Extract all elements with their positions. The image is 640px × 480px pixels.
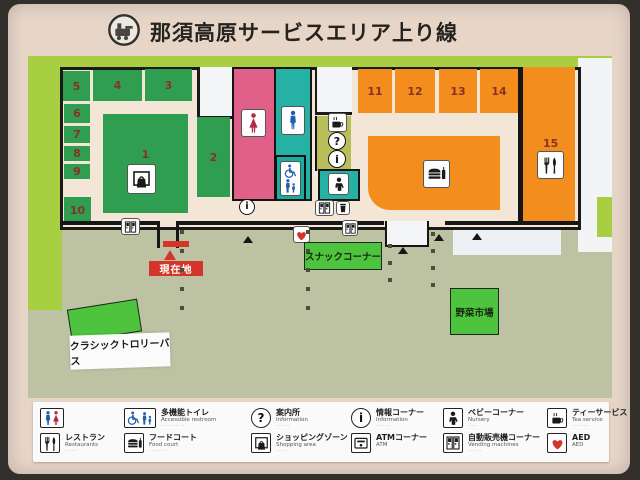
shop-unit-3: 3 [145,69,192,101]
pillar [431,266,435,270]
current-location-label: 現在地 [149,261,203,276]
food-court-icon [423,160,450,188]
current-location-arrow [164,250,176,260]
entrance-arrow [434,234,444,241]
legend-sublabel: ATM [376,442,427,448]
shop-unit-2: 2 [197,117,230,197]
pillar [180,268,184,272]
unit-number: 11 [367,85,382,98]
legend-label: ATMコーナー [376,433,427,442]
food-court-icon [124,433,144,453]
shop-unit-5: 5 [63,71,90,101]
pillar [431,232,435,236]
trolley-bus-label: クラシックトロリーバス [69,332,170,369]
snack-corner-label: スナックコーナー [304,242,382,270]
pillar [306,268,310,272]
vending-machine-icon [121,218,140,235]
unit-number: 5 [73,80,81,93]
pillar [388,261,392,265]
pillar [306,306,310,310]
legend-note: ······ [468,449,540,454]
shop-unit-7: 7 [64,126,90,143]
accessible-restroom-icon [124,408,156,428]
legend-note: ····· [276,449,348,454]
legend-note: ······· [149,449,197,454]
legend-item-information-corner: i 情報コーナーInformation······ [351,408,424,432]
legend-label: 情報コーナー [376,408,424,417]
legend-label: AED [572,433,590,442]
legend-item-accessible-restroom: 多機能トイレAccessible restroom·········· [124,408,216,432]
info-glyph: i [335,154,339,165]
baby-corner-icon [328,173,349,195]
entrance-arrow [398,247,408,254]
question-glyph: ? [334,136,340,147]
vending-machine-icon [342,220,358,236]
vending-machine-icon [443,433,463,453]
atm-icon [351,433,371,453]
baby-corner-icon [443,408,463,428]
info-glyph: i [245,202,248,212]
unit-number: 4 [114,79,122,92]
shop-unit-11: 11 [358,69,392,113]
information-corner-icon: i [351,408,371,428]
vending-machine-icon [315,200,334,216]
legend-label: レストラン [65,433,105,442]
legend-label: フードコート [149,433,197,442]
grass-patch-right [597,197,612,237]
staff-room [197,67,233,119]
shop-unit-6: 6 [64,104,90,123]
restroom-icon [40,408,64,428]
legend-note: ······· [572,424,627,429]
aed-icon [547,433,567,453]
grass-area-left [28,226,62,310]
restaurant-icon [537,151,564,179]
legend-note: ·········· [161,424,216,429]
entrance-arrow [243,236,253,243]
accessible-restroom [275,155,306,201]
pillar [306,230,310,234]
legend-note: ······ [376,424,424,429]
shopping-zone-icon [251,433,271,453]
unit-number: 8 [73,147,81,160]
legend-label: 多機能トイレ [161,408,216,417]
pillar [431,249,435,253]
legend-item-shopping-zone: ショッピングゾーンShopping area····· [251,433,348,457]
legend-item-restroom [40,408,64,432]
legend-item-aed: AEDAED [547,433,590,457]
canopy-area [453,229,561,255]
photo-of-sign: 那須高原サービスエリア上り線 5 4 3 6 7 8 9 10 1 2 ? i [0,0,640,480]
pillar [388,278,392,282]
legend-item-vending-machines: 自動販売機コーナーVending machines······ [443,433,540,457]
womens-restroom [232,67,276,201]
legend-note: ···· [468,424,524,429]
shop-unit-15-restaurant: 15 [523,67,575,223]
information-desk-icon: ? [251,408,271,428]
tea-service-icon [547,408,567,428]
legend-item-baby-corner: ベビーコーナーNursery···· [443,408,524,432]
trash-icon [336,201,350,215]
pillar [306,249,310,253]
baby-corner-room [318,169,360,201]
info-glyph: i [359,411,363,425]
legend-note: ······ [276,424,308,429]
tea-service-icon [328,113,347,132]
aed-icon [293,226,310,243]
shop-unit-13: 13 [439,69,477,113]
legend-panel: レストランRestaurants····· 多機能トイレAccessible r… [33,402,609,462]
pillar [388,244,392,248]
legend-item-restaurant: レストランRestaurants····· [40,433,105,457]
shop-unit-12: 12 [395,69,435,113]
legend-item-information-desk: ? 案内所Information······ [251,408,308,432]
shop-unit-1-shopping-zone: 1 [103,114,188,213]
question-glyph: ? [258,411,265,425]
legend-item-food-court: フードコートFood court······· [124,433,197,457]
legend-label: 自動販売機コーナー [468,433,540,442]
wheelchair-family-icon [280,161,301,196]
unit-number: 3 [165,79,173,92]
back-room [315,67,352,115]
unit-number: 9 [73,165,81,178]
woman-icon [241,109,266,137]
shop-unit-14: 14 [480,69,518,113]
food-court-area [368,136,500,210]
unit-number: 2 [210,151,218,164]
shop-unit-10: 10 [64,197,91,223]
pillar [306,287,310,291]
entrance-vestibule-wall [157,221,160,248]
unit-number: 12 [407,85,422,98]
legend-item-tea-service: ティーサービスTea service······· [547,408,627,432]
unit-number: 7 [73,128,81,141]
restaurant-icon [40,433,60,453]
information-desk-icon: ? [328,132,346,150]
information-corner-icon: i [239,199,255,215]
pillar [180,306,184,310]
legend-note: ····· [65,449,105,454]
pillar [180,249,184,253]
pillar [180,287,184,291]
unit-number: 1 [142,148,150,161]
train-emblem-logo [108,14,140,46]
shop-unit-9: 9 [64,164,90,179]
unit-number: 6 [73,107,81,120]
unit-number: 13 [450,85,465,98]
legend-item-atm-corner: ATMコーナーATM [351,433,427,457]
shop-unit-4: 4 [93,70,142,101]
legend-sublabel: AED [572,442,590,448]
man-icon [281,106,305,135]
entrance-arrow [472,233,482,240]
unit-number: 14 [491,85,506,98]
unit-number: 15 [543,137,558,150]
legend-label: ティーサービス [572,408,627,417]
pillar [431,283,435,287]
unit-number: 10 [70,204,85,217]
wall-segment [60,221,157,225]
legend-label: ベビーコーナー [468,408,524,417]
title-bar: 那須高原サービスエリア上り線 [28,12,612,52]
legend-label: ショッピングゾーン [276,433,348,442]
shopping-zone-icon [127,164,156,194]
vegetable-market-label: 野菜市場 [450,288,499,335]
pillar [180,230,184,234]
current-location-marker [163,241,189,247]
wall-segment [445,221,578,225]
page-title: 那須高原サービスエリア上り線 [150,17,458,47]
information-corner-icon: i [328,150,346,168]
legend-label: 案内所 [276,408,308,417]
shop-unit-8: 8 [64,146,90,161]
